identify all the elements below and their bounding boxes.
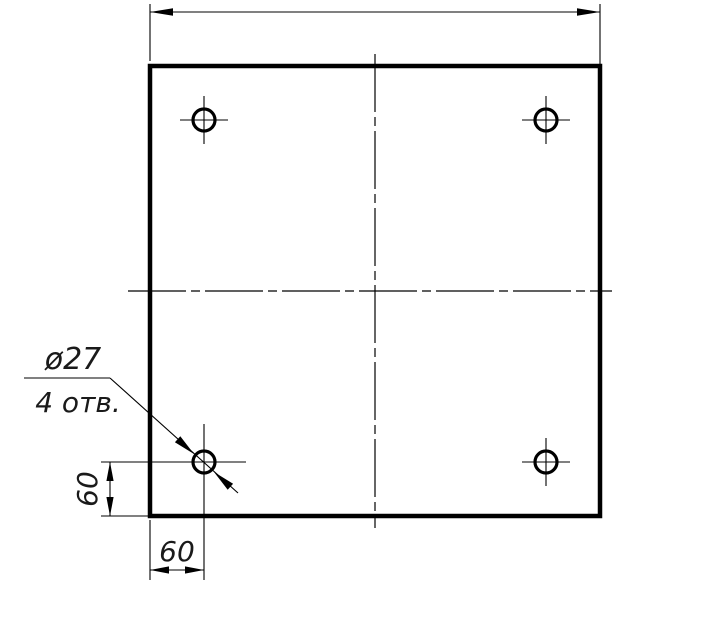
dimension-hole-offset-vertical: 60 [71,462,150,516]
plate-drawing: 60 60 ø27 4 отв. [0,0,713,631]
callout-diameter-label: ø27 [44,342,102,377]
callout-count-label: 4 отв. [35,386,121,419]
arrowhead-left-icon [150,8,173,16]
dimension-hole-offset-horizontal: 60 [150,520,204,580]
dimension-value-horizontal: 60 [159,535,195,568]
arrowhead-right-icon [577,8,600,16]
arrowhead-down-icon [106,497,113,516]
drawing-canvas: 60 60 ø27 4 отв. [0,0,713,631]
dimension-value-vertical: 60 [71,471,104,507]
arrowhead-up-icon [106,462,113,481]
